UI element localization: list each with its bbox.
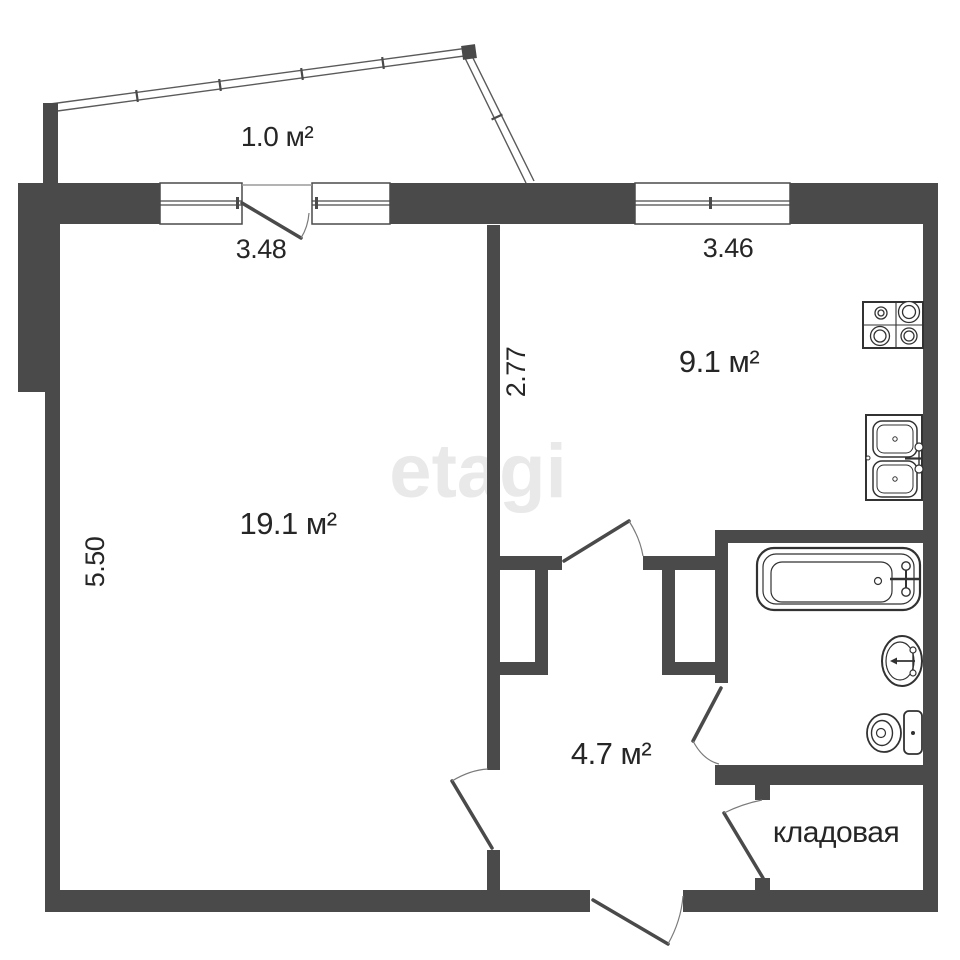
wall-right-niche-bottom xyxy=(662,662,715,675)
balcony-railing-corner-post xyxy=(461,44,477,60)
toilet xyxy=(867,711,922,754)
door-bathroom-leaf xyxy=(693,688,721,741)
toilet-drain xyxy=(877,729,886,738)
room-label-storage: кладовая xyxy=(773,816,899,849)
wall-left-thick xyxy=(18,183,60,392)
wall-right-niche-side xyxy=(662,570,675,662)
wall-kitchen-bottom-right xyxy=(643,556,715,570)
wall-bathroom-left xyxy=(715,530,728,683)
floor-plan-page: etagi xyxy=(0,0,960,960)
toilet-tank-button xyxy=(911,731,915,735)
floor-plan-svg: etagi xyxy=(0,0,960,960)
wall-bathroom-top xyxy=(715,530,923,543)
door-bathroom-arc xyxy=(693,741,719,764)
door-living-arc xyxy=(452,769,488,781)
room-label-balcony: 1.0 м² xyxy=(241,121,313,152)
wall-left-niche-bottom xyxy=(500,662,548,675)
wall-top-right xyxy=(790,183,938,224)
wall-storage-door-post-top xyxy=(755,785,770,800)
window-living-left xyxy=(160,183,242,224)
dimension-kitchen-depth: 2.77 xyxy=(501,347,531,398)
door-storage-arc xyxy=(724,800,762,813)
room-label-living: 19.1 м² xyxy=(239,506,336,541)
door-kitchen-arc xyxy=(629,521,643,556)
door-storage-leaf xyxy=(724,813,763,878)
bathtub-drain xyxy=(875,578,882,585)
door-balcony xyxy=(242,185,312,238)
bathtub-basin xyxy=(771,562,892,602)
door-kitchen xyxy=(564,521,643,561)
door-balcony-arc xyxy=(301,213,309,238)
dimension-living-width: 3.48 xyxy=(236,234,287,264)
door-kitchen-leaf xyxy=(564,521,629,561)
door-storage xyxy=(724,800,763,878)
balcony-left-post xyxy=(43,103,58,183)
wall-left-narrow xyxy=(45,392,60,912)
bathtub xyxy=(757,548,920,610)
washbasin xyxy=(882,636,922,686)
watermark-etagi: etagi xyxy=(389,429,566,514)
kitchen-sink xyxy=(866,415,923,500)
dimension-living-depth: 5.50 xyxy=(80,537,110,588)
room-label-hallway: 4.7 м² xyxy=(571,736,652,771)
wall-kitchen-bottom-left xyxy=(500,556,562,570)
wall-right xyxy=(923,183,938,912)
wall-bathroom-bottom xyxy=(715,765,923,785)
wall-divider-living-kitchen xyxy=(487,225,500,770)
wall-divider-lower-post xyxy=(487,850,500,890)
balcony-railing-inner-line xyxy=(50,56,526,183)
door-living-leaf xyxy=(452,781,492,848)
door-entrance-arc xyxy=(668,896,683,944)
door-entrance xyxy=(593,896,683,944)
window-kitchen xyxy=(635,183,790,224)
wall-bottom-left xyxy=(45,890,590,912)
dimension-kitchen-width: 3.46 xyxy=(703,233,754,263)
stove xyxy=(863,302,923,349)
window-living-right xyxy=(312,183,390,224)
kitchen-sink-basin-bottom xyxy=(873,461,917,497)
wall-top-middle xyxy=(390,183,635,224)
door-bathroom xyxy=(693,688,721,764)
wall-left-niche-side xyxy=(535,570,548,662)
room-label-kitchen: 9.1 м² xyxy=(679,344,760,379)
wall-bottom-right xyxy=(683,890,938,912)
door-balcony-leaf xyxy=(242,203,301,238)
balcony-railing xyxy=(50,44,534,183)
kitchen-sink-basin-top xyxy=(873,421,917,457)
door-entrance-leaf xyxy=(593,900,668,944)
door-living-room xyxy=(452,769,492,848)
wall-storage-door-post-bottom xyxy=(755,878,770,890)
balcony-railing-outer-line xyxy=(50,48,534,181)
balcony-railing-ticks xyxy=(136,57,502,119)
